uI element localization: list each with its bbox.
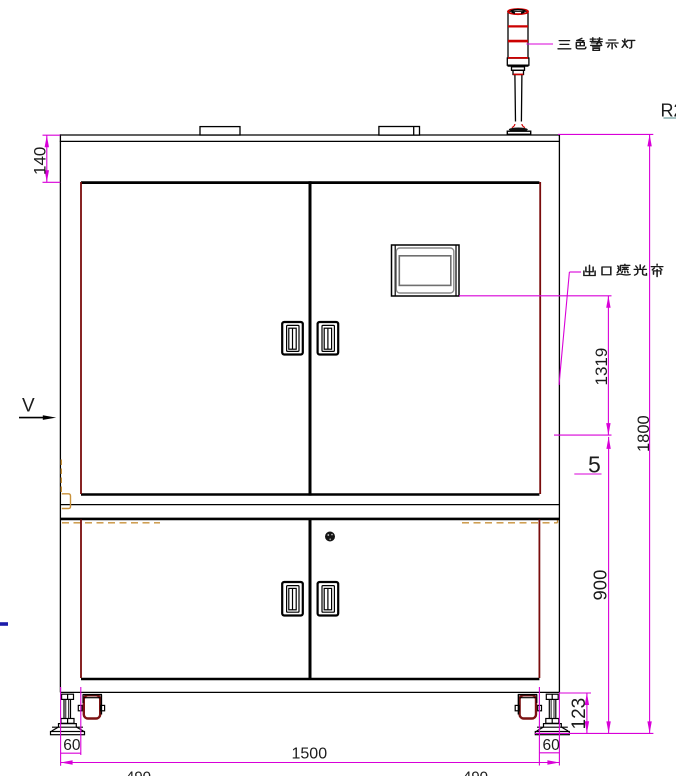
svg-text:60: 60 [63, 737, 81, 754]
svg-text:1500: 1500 [292, 746, 328, 763]
svg-text:140: 140 [30, 147, 49, 175]
svg-text:1319: 1319 [592, 348, 611, 386]
svg-text:490: 490 [126, 769, 151, 776]
svg-text:1800: 1800 [635, 415, 653, 452]
svg-text:123: 123 [569, 698, 590, 730]
svg-text:5: 5 [588, 452, 601, 478]
svg-text:V: V [22, 396, 35, 417]
svg-text:900: 900 [590, 570, 611, 601]
svg-text:490: 490 [463, 769, 488, 776]
svg-text:60: 60 [543, 737, 561, 754]
